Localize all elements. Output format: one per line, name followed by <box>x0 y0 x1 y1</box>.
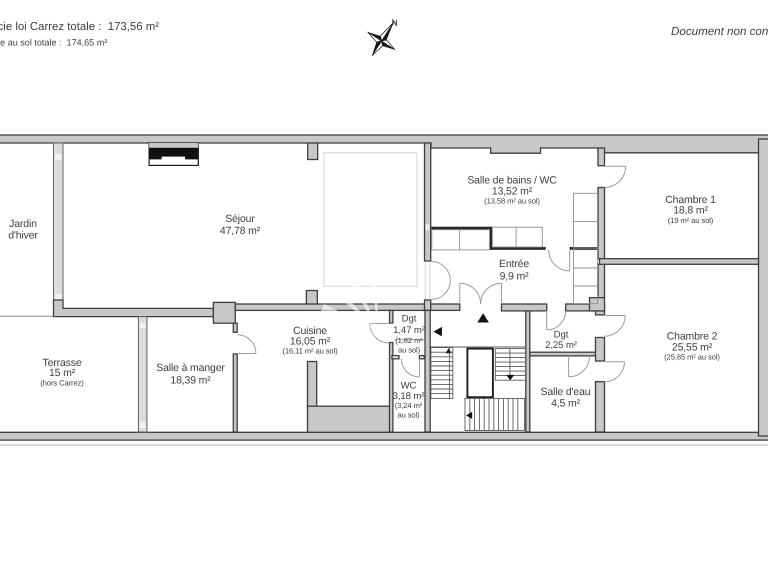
svg-text:Dgt2,25 m²: Dgt2,25 m² <box>545 330 578 352</box>
svg-text:Chambre 225,55 m²(25,85 m² au: Chambre 225,55 m²(25,85 m² au sol) <box>664 330 720 361</box>
svg-text:Superficie loi Carrez totale :: Superficie loi Carrez totale : 173,56 m² <box>0 21 159 33</box>
svg-text:Dgt1,47 m²(1,82 m²au sol): Dgt1,47 m²(1,82 m²au sol) <box>393 314 426 355</box>
svg-text:WC3,18 m²(3,24 m²au sol): WC3,18 m²(3,24 m²au sol) <box>393 381 426 420</box>
svg-text:Séjour47,78 m²: Séjour47,78 m² <box>220 213 261 237</box>
svg-text:Surface au sol totale : 174,6: Surface au sol totale : 174,65 m² <box>0 38 107 48</box>
svg-text:Entrée9,9 m²: Entrée9,9 m² <box>499 258 529 283</box>
svg-text:Salle d'eau4,5 m²: Salle d'eau4,5 m² <box>541 386 591 410</box>
svg-text:Salle à manger18,39 m²: Salle à manger18,39 m² <box>156 362 225 387</box>
svg-text:Document non contractuel: Document non contractuel <box>671 25 768 38</box>
svg-text:Terrasse15 m²(hors Carrez): Terrasse15 m²(hors Carrez) <box>40 357 84 388</box>
svg-text:Cuisine16,05 m²(16,11 m² au so: Cuisine16,05 m²(16,11 m² au sol) <box>282 325 338 356</box>
svg-text:Salle de bains / WC13,52 m²(13: Salle de bains / WC13,52 m²(13,58 m² au … <box>467 175 557 206</box>
svg-text:Jardind'hiver: Jardind'hiver <box>8 218 38 241</box>
svg-text:Chambre 118,8 m²(19 m² au sol): Chambre 118,8 m²(19 m² au sol) <box>665 194 716 225</box>
